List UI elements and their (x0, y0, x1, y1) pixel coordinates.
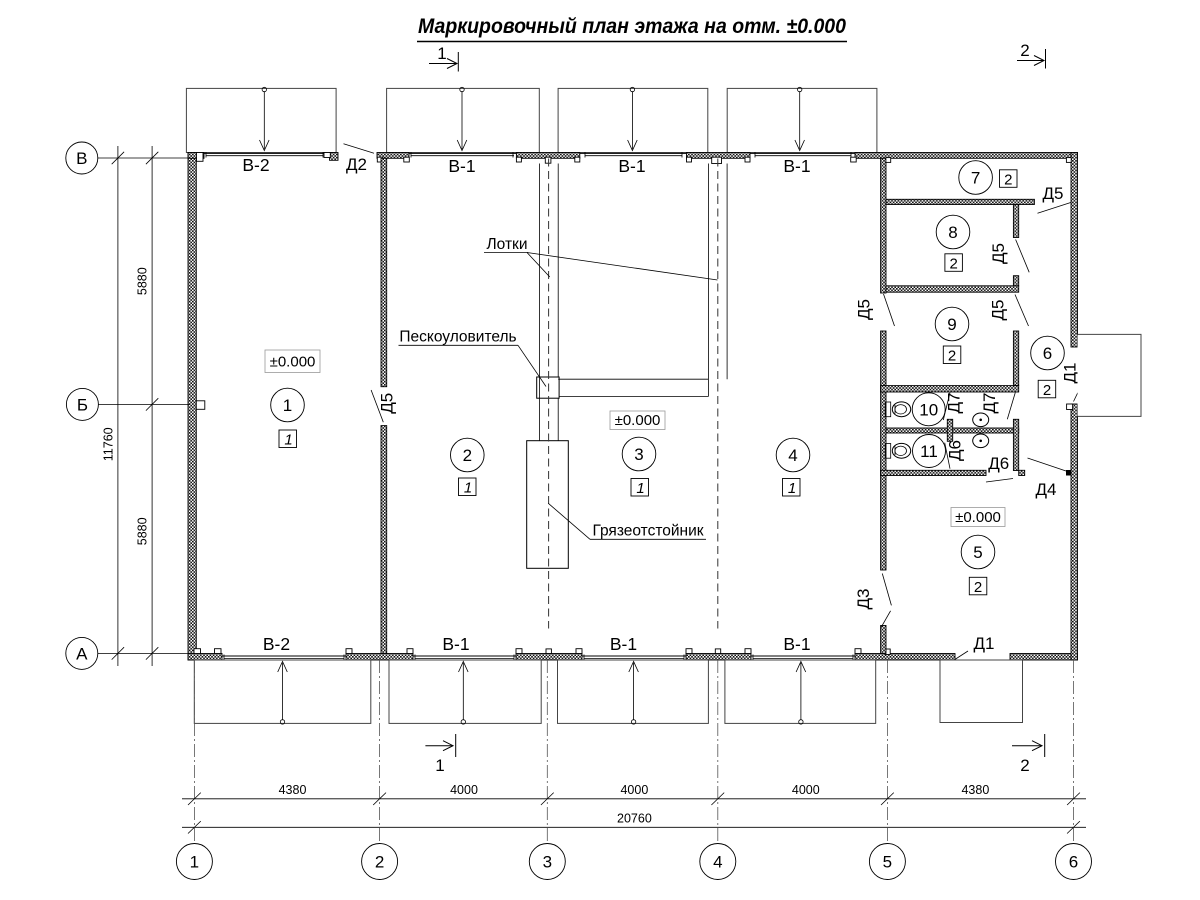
svg-text:2: 2 (375, 853, 384, 872)
svg-text:2: 2 (974, 579, 982, 596)
svg-text:В-1: В-1 (610, 634, 637, 654)
svg-text:1: 1 (636, 480, 644, 497)
svg-text:9: 9 (947, 315, 956, 334)
svg-text:Д5: Д5 (1043, 184, 1064, 203)
svg-text:Д5: Д5 (378, 393, 397, 414)
svg-text:Д2: Д2 (346, 155, 367, 174)
svg-text:2: 2 (1020, 41, 1029, 60)
svg-text:7: 7 (971, 169, 980, 188)
svg-text:4000: 4000 (620, 783, 648, 797)
svg-text:±0.000: ±0.000 (270, 354, 316, 371)
svg-text:1: 1 (284, 432, 292, 449)
svg-text:1: 1 (435, 756, 444, 775)
svg-text:В-2: В-2 (242, 155, 269, 175)
svg-text:Д5: Д5 (989, 300, 1008, 321)
svg-text:5880: 5880 (136, 267, 150, 295)
svg-text:1: 1 (283, 396, 292, 415)
svg-text:3: 3 (634, 445, 643, 464)
svg-text:6: 6 (1043, 344, 1052, 363)
svg-text:Д7: Д7 (945, 393, 964, 414)
svg-text:В-1: В-1 (448, 156, 475, 176)
svg-text:Д7: Д7 (980, 393, 999, 414)
svg-text:Пескоуловитель: Пескоуловитель (399, 329, 516, 346)
svg-text:4380: 4380 (279, 783, 307, 797)
svg-text:Д5: Д5 (855, 299, 874, 320)
svg-text:Б: Б (77, 395, 88, 414)
svg-text:±0.000: ±0.000 (615, 412, 661, 429)
svg-text:4000: 4000 (450, 783, 478, 797)
svg-text:11760: 11760 (102, 427, 116, 461)
svg-text:В-1: В-1 (783, 156, 810, 176)
svg-text:1: 1 (437, 44, 446, 63)
svg-text:5: 5 (883, 853, 892, 872)
svg-text:2: 2 (1043, 382, 1051, 399)
svg-text:В-2: В-2 (263, 634, 290, 654)
svg-text:2: 2 (463, 446, 472, 465)
svg-text:4000: 4000 (792, 783, 820, 797)
svg-text:Д1: Д1 (1061, 363, 1080, 384)
svg-text:4380: 4380 (961, 783, 989, 797)
svg-text:2: 2 (948, 348, 956, 365)
svg-text:4: 4 (713, 853, 722, 872)
svg-text:10: 10 (919, 400, 938, 419)
svg-text:2: 2 (1004, 171, 1012, 188)
svg-text:Д3: Д3 (854, 589, 873, 610)
svg-text:Д4: Д4 (1036, 480, 1057, 499)
svg-text:3: 3 (543, 853, 552, 872)
svg-text:±0.000: ±0.000 (955, 509, 1001, 526)
svg-text:Д5: Д5 (989, 243, 1008, 264)
svg-text:5880: 5880 (136, 517, 150, 545)
svg-text:2: 2 (1020, 756, 1029, 775)
svg-text:1: 1 (464, 480, 472, 497)
svg-text:В: В (76, 149, 87, 168)
svg-text:11: 11 (920, 442, 938, 461)
svg-text:2: 2 (950, 255, 958, 272)
svg-text:Лотки: Лотки (487, 236, 528, 253)
svg-text:Д1: Д1 (974, 634, 995, 653)
svg-text:6: 6 (1069, 853, 1078, 872)
svg-text:Д6: Д6 (946, 440, 965, 461)
svg-text:20760: 20760 (617, 812, 652, 826)
svg-text:В-1: В-1 (783, 634, 810, 654)
svg-text:А: А (76, 644, 88, 663)
svg-text:4: 4 (788, 446, 797, 465)
svg-text:Грязеотстойник: Грязеотстойник (592, 523, 703, 540)
svg-text:8: 8 (948, 223, 957, 242)
svg-text:В-1: В-1 (618, 156, 645, 176)
svg-text:1: 1 (788, 480, 796, 497)
svg-text:В-1: В-1 (442, 634, 469, 654)
svg-text:Маркировочный план этажа на от: Маркировочный план этажа на отм. ±0.000 (418, 15, 846, 38)
svg-text:1: 1 (190, 853, 199, 872)
svg-text:5: 5 (973, 543, 982, 562)
svg-text:Д6: Д6 (988, 454, 1009, 473)
